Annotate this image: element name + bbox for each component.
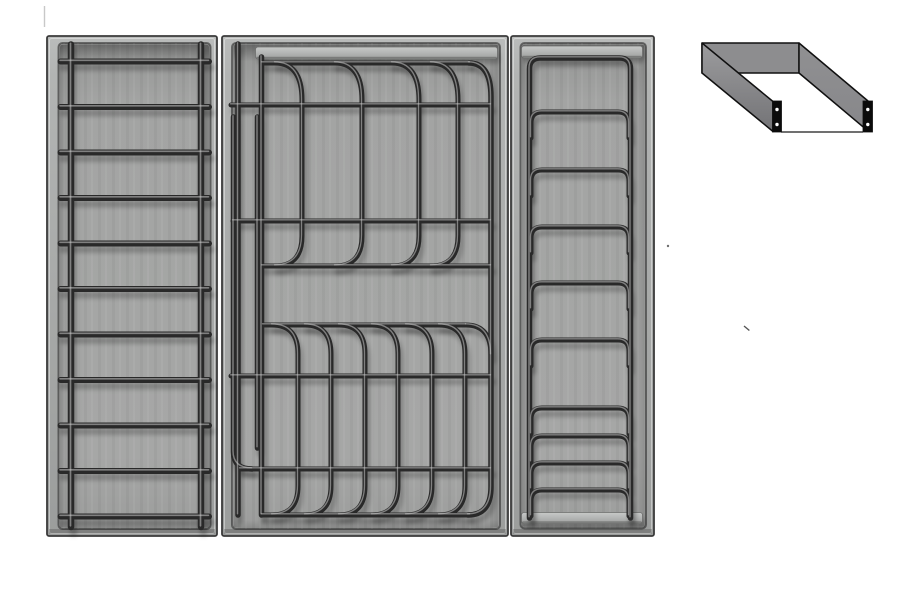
tray-arch-rack	[511, 36, 654, 536]
tray-plate-rack	[222, 36, 508, 536]
mounting-bracket-diagram	[702, 43, 873, 132]
product-render	[0, 0, 916, 600]
tray-bar-ladder	[47, 36, 217, 536]
product-scene	[0, 0, 916, 600]
